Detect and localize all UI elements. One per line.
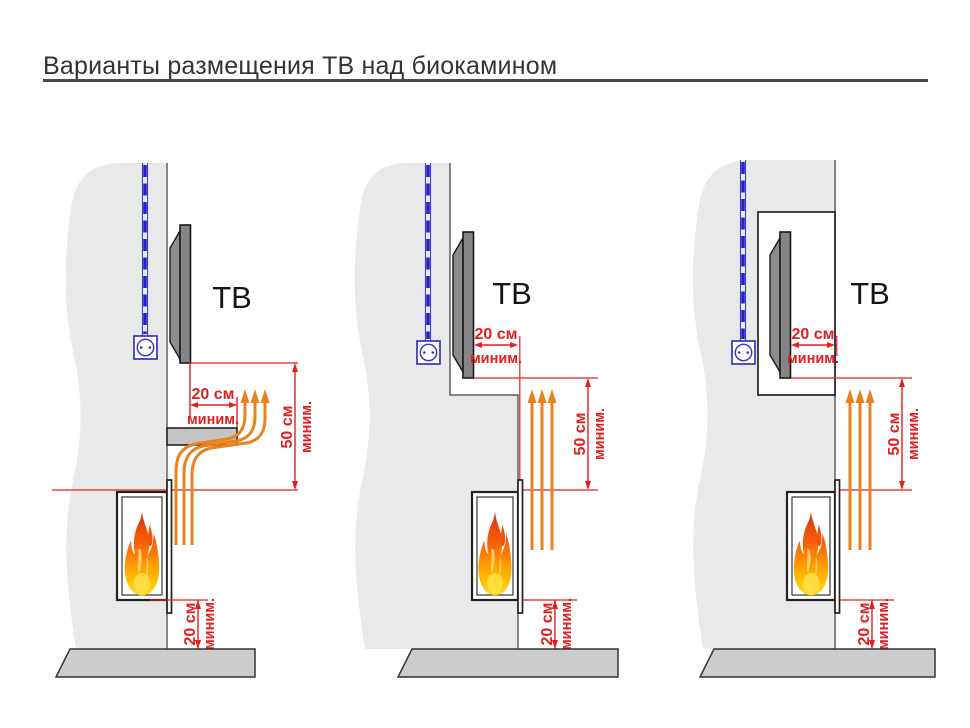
dimension-value: 50 см <box>572 413 589 456</box>
tv-label: ТВ <box>492 276 532 311</box>
dimension-value: 20 см <box>192 386 235 403</box>
power-socket-icon <box>417 341 440 364</box>
variant-2-recessed-tv: ТВ 20 см миним. 50 см миним <box>340 140 640 715</box>
dimension-side-gap: 50 см миним. <box>886 378 922 490</box>
dimension-qualifier: миним. <box>592 408 608 460</box>
dimension-side-gap: 50 см миним. <box>572 378 608 490</box>
fireplace <box>472 480 523 613</box>
dimension-value: 20 см <box>182 603 199 646</box>
floor-slab <box>700 649 935 677</box>
fireplace <box>787 480 840 613</box>
dimension-top-gap: 20 см миним. <box>470 326 522 367</box>
power-socket-icon <box>134 336 157 359</box>
fireplace <box>117 480 172 613</box>
dimension-qualifier: миним. <box>187 412 239 428</box>
dimension-qualifier: миним. <box>787 351 839 367</box>
tv-side-view <box>170 225 191 363</box>
dimension-qualifier: миним. <box>559 598 575 650</box>
floor-slab <box>398 649 618 677</box>
dimension-qualifier: миним. <box>202 598 218 650</box>
dimension-bottom-gap: 20 см миним. <box>840 598 894 650</box>
variant-1-protective-shelf: ТВ 20 см миним. <box>30 140 330 715</box>
dimension-qualifier: миним. <box>299 401 315 453</box>
heat-flow-arrows <box>528 389 557 550</box>
power-socket-icon <box>732 341 755 364</box>
fireplace-front-panel <box>835 480 840 613</box>
dimension-qualifier: миним. <box>906 408 922 460</box>
dimension-top-gap: 20 см миним. <box>187 363 239 430</box>
title-underline <box>43 79 928 82</box>
dimension-value: 50 см <box>886 413 903 456</box>
tv-label: ТВ <box>212 280 252 315</box>
variant-3-tv-in-niche: ТВ 20 см миним. 50 см миним <box>650 140 950 715</box>
dimension-value: 50 см <box>279 406 296 449</box>
floor-slab <box>56 649 255 677</box>
fireplace-front-panel <box>167 480 172 613</box>
dimension-bottom-gap: 20 см миним. <box>523 598 577 650</box>
dimension-qualifier: миним. <box>470 351 522 367</box>
dimension-value: 20 см <box>792 326 835 343</box>
dimension-value: 20 см <box>856 603 873 646</box>
fireplace-front-panel <box>518 480 523 613</box>
dimension-value: 20 см <box>539 603 556 646</box>
tv-label: ТВ <box>850 276 890 311</box>
heat-flow-arrows <box>846 389 875 550</box>
dimension-side-gap: 50 см миним. <box>279 363 315 490</box>
dimension-qualifier: миним. <box>876 598 892 650</box>
slide: Варианты размещения ТВ над биокамином <box>0 0 970 728</box>
page-title: Варианты размещения ТВ над биокамином <box>43 52 557 81</box>
dimension-value: 20 см <box>475 326 518 343</box>
